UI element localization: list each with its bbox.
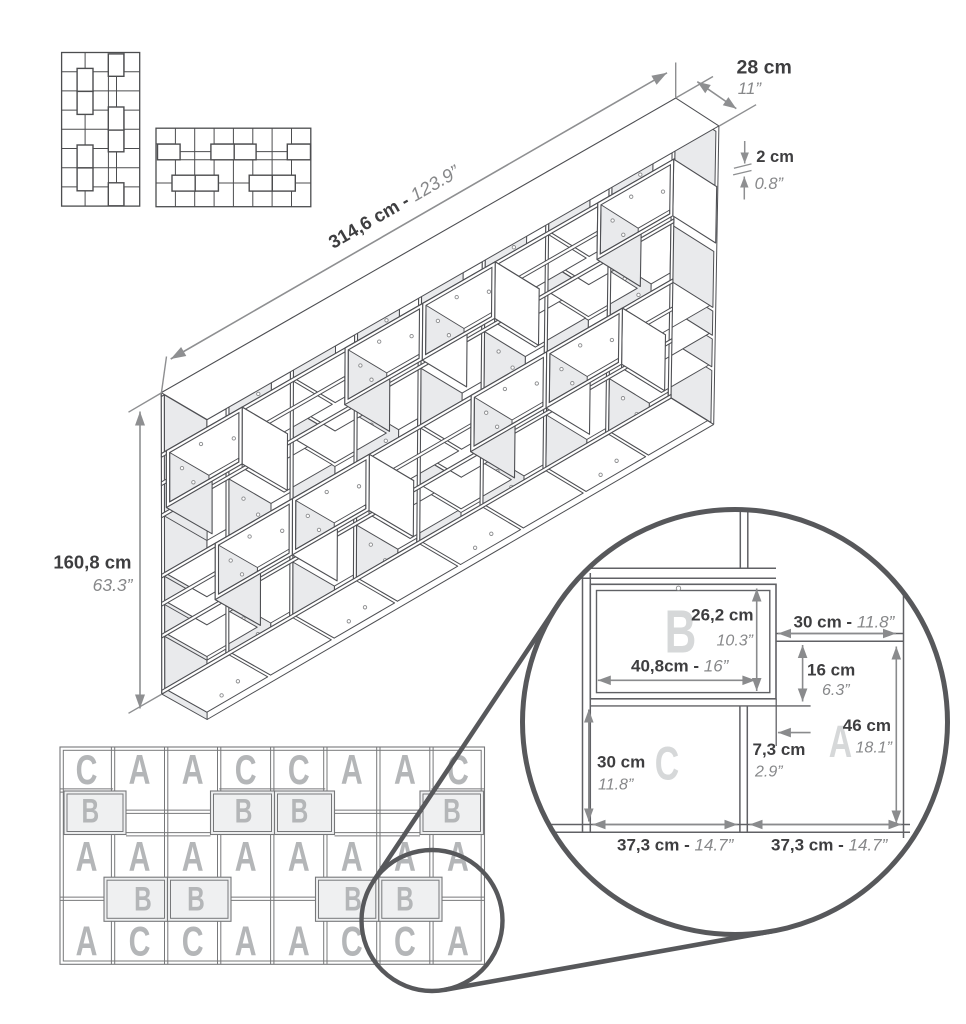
svg-text:A: A bbox=[76, 918, 98, 965]
svg-text:18.1”: 18.1” bbox=[856, 740, 893, 757]
svg-text:37,3 cm - 14.7”: 37,3 cm - 14.7” bbox=[617, 836, 735, 855]
svg-text:C: C bbox=[655, 737, 679, 790]
svg-text:A: A bbox=[129, 833, 151, 880]
svg-text:B: B bbox=[81, 793, 99, 831]
svg-text:B: B bbox=[235, 793, 253, 831]
svg-text:30 cm - 11.8”: 30 cm - 11.8” bbox=[794, 613, 896, 632]
svg-text:160,8 cm: 160,8 cm bbox=[53, 552, 131, 573]
svg-text:A: A bbox=[76, 833, 98, 880]
svg-text:A: A bbox=[341, 746, 363, 793]
svg-text:C: C bbox=[76, 746, 98, 793]
svg-text:A: A bbox=[447, 918, 469, 965]
svg-text:16 cm: 16 cm bbox=[807, 661, 855, 680]
svg-text:6.3”: 6.3” bbox=[822, 682, 850, 699]
svg-text:11”: 11” bbox=[738, 79, 763, 98]
svg-text:A: A bbox=[288, 833, 310, 880]
svg-text:C: C bbox=[129, 918, 151, 965]
svg-text:7,3 cm: 7,3 cm bbox=[753, 740, 806, 759]
svg-text:A: A bbox=[288, 918, 310, 965]
svg-text:0.8”: 0.8” bbox=[755, 175, 785, 193]
svg-text:A: A bbox=[182, 746, 204, 793]
svg-text:30 cm: 30 cm bbox=[597, 753, 645, 772]
svg-text:B: B bbox=[443, 793, 461, 831]
svg-text:B: B bbox=[344, 880, 362, 918]
svg-text:C: C bbox=[288, 746, 310, 793]
svg-text:46 cm: 46 cm bbox=[843, 716, 891, 735]
svg-text:C: C bbox=[235, 746, 257, 793]
svg-text:A: A bbox=[341, 833, 363, 880]
svg-text:26,2 cm: 26,2 cm bbox=[691, 606, 753, 625]
svg-text:A: A bbox=[235, 918, 257, 965]
svg-text:11.8”: 11.8” bbox=[598, 777, 634, 794]
svg-text:C: C bbox=[182, 918, 204, 965]
svg-text:B: B bbox=[187, 880, 205, 918]
svg-text:10.3”: 10.3” bbox=[717, 633, 754, 650]
svg-text:2 cm: 2 cm bbox=[756, 148, 794, 166]
svg-text:63.3”: 63.3” bbox=[93, 575, 134, 595]
svg-text:37,3 cm - 14.7”: 37,3 cm - 14.7” bbox=[771, 836, 889, 855]
svg-text:A: A bbox=[235, 833, 257, 880]
svg-text:A: A bbox=[394, 746, 416, 793]
svg-text:2.9”: 2.9” bbox=[754, 764, 783, 781]
svg-text:28 cm: 28 cm bbox=[737, 57, 792, 79]
svg-text:A: A bbox=[182, 833, 204, 880]
svg-text:A: A bbox=[129, 746, 151, 793]
svg-text:B: B bbox=[134, 880, 152, 918]
svg-text:40,8cm - 16”: 40,8cm - 16” bbox=[631, 657, 730, 676]
svg-text:C: C bbox=[394, 918, 416, 965]
svg-text:B: B bbox=[291, 793, 309, 831]
svg-text:B: B bbox=[396, 880, 414, 918]
